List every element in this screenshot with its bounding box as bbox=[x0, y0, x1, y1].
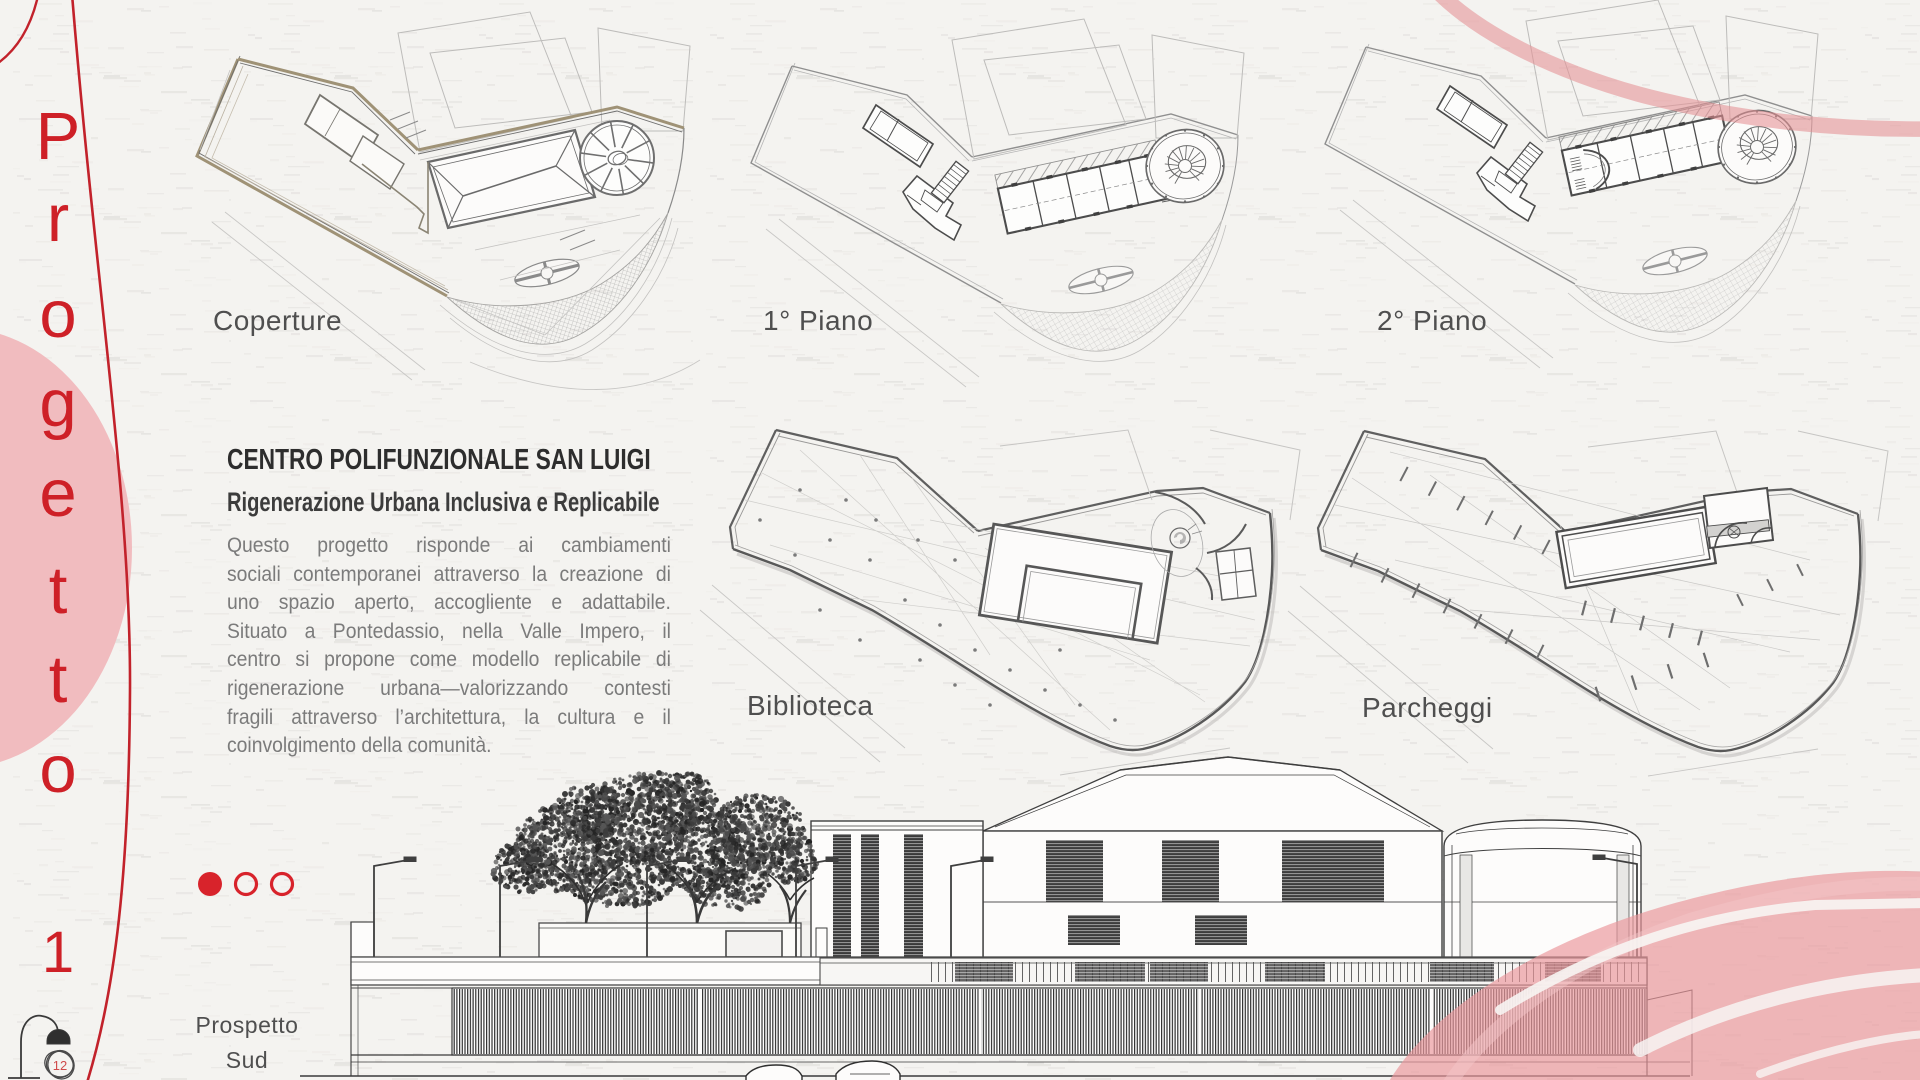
svg-text:12: 12 bbox=[53, 1058, 67, 1073]
